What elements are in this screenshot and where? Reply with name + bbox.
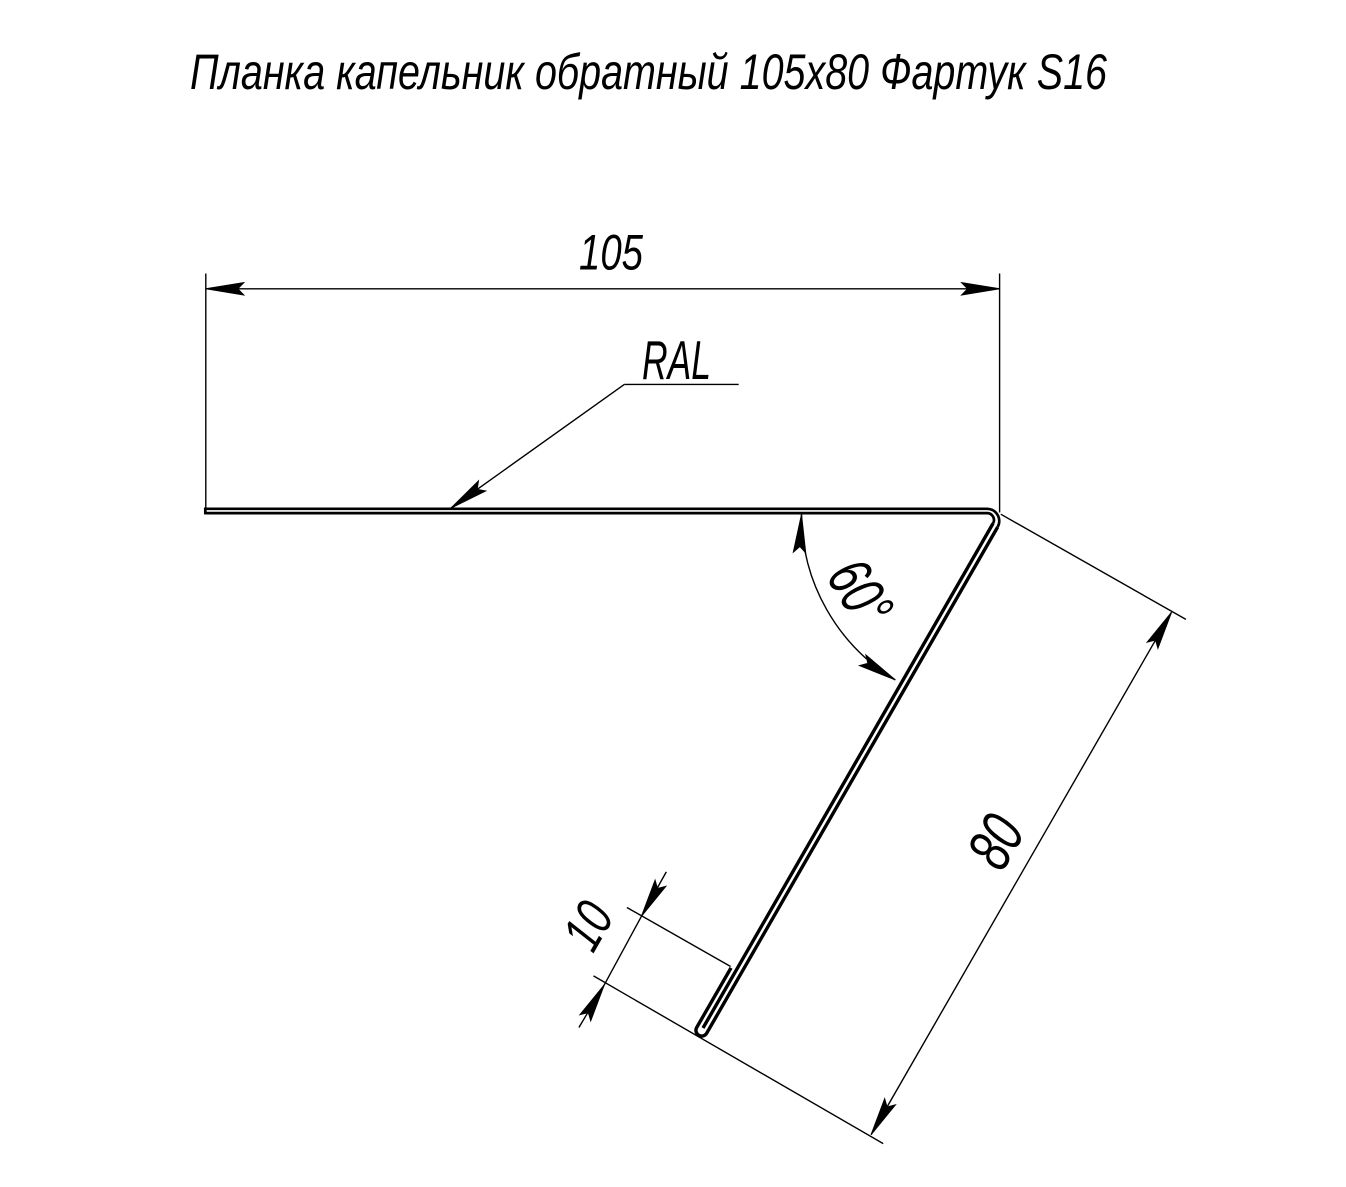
svg-text:Планка капельник обратный 105х: Планка капельник обратный 105х80 Фартук … xyxy=(190,44,1107,100)
svg-text:RAL: RAL xyxy=(642,329,711,391)
svg-text:105: 105 xyxy=(579,225,643,281)
